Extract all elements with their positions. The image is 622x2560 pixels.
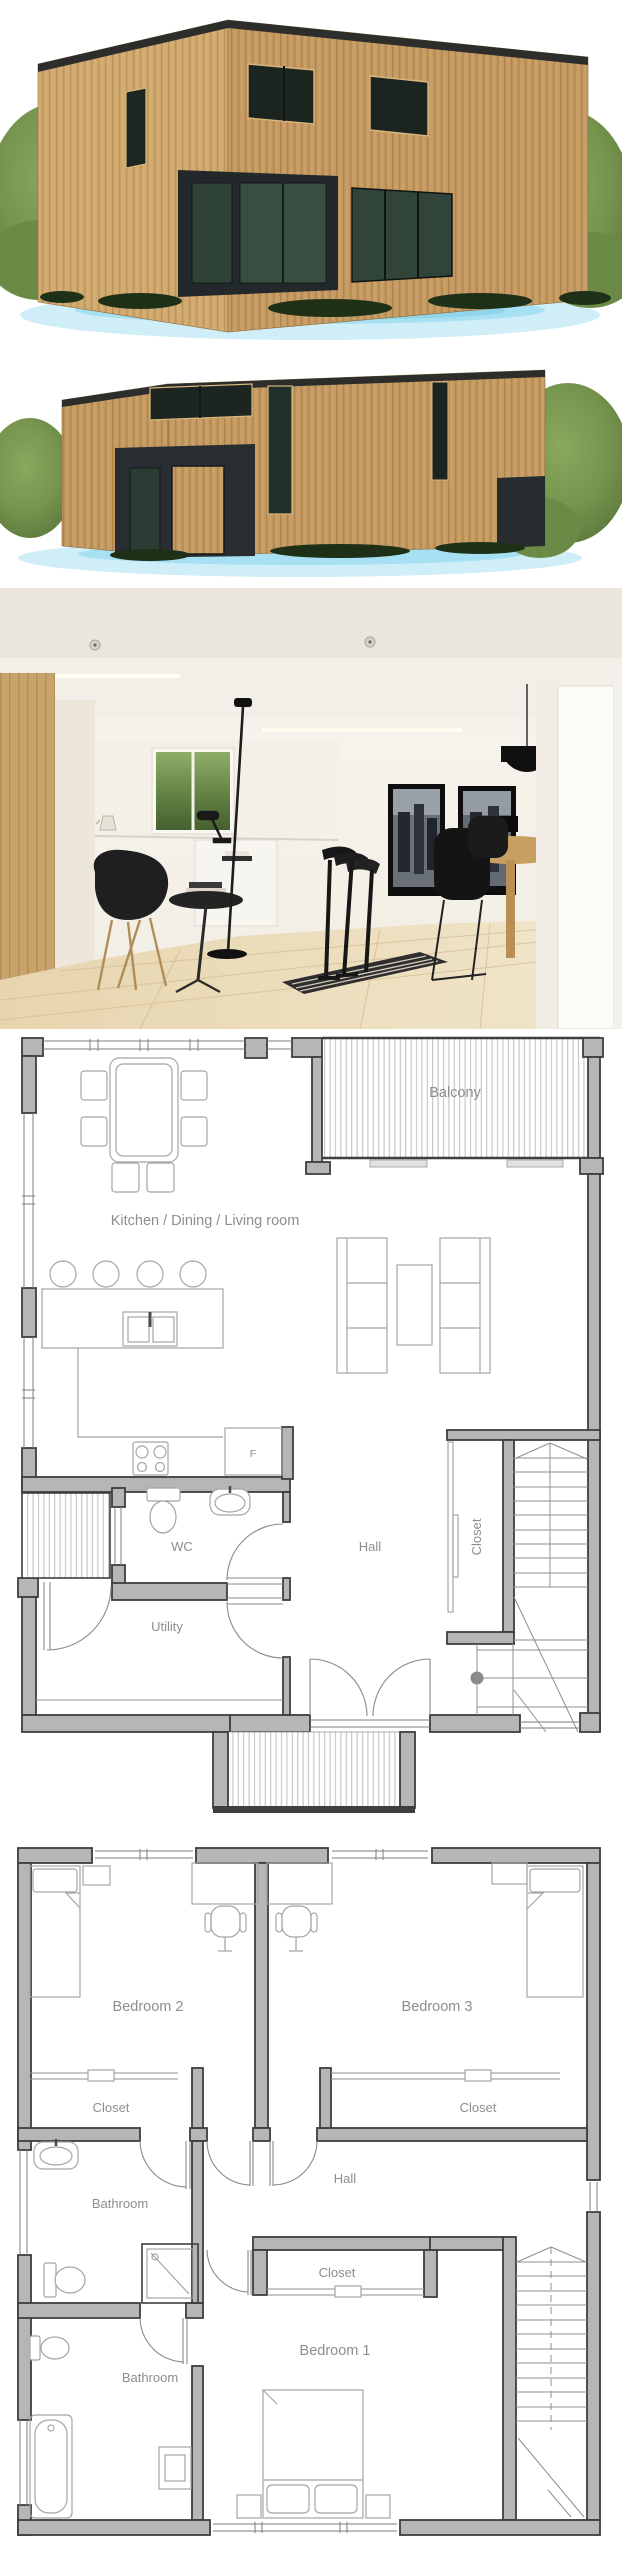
wall-pillar bbox=[536, 680, 558, 1029]
kitchen-window bbox=[152, 748, 234, 834]
interior-render-living bbox=[0, 588, 622, 1029]
cove-light-right bbox=[262, 728, 462, 732]
wc-door-swing bbox=[227, 1524, 283, 1580]
side-porch bbox=[22, 1493, 110, 1578]
main-room-label: Kitchen / Dining / Living room bbox=[111, 1213, 300, 1229]
hall-closet-upstairs: Closet bbox=[207, 2250, 424, 2297]
bedroom3-door-swing bbox=[273, 2141, 317, 2185]
portal-side-glass-icon bbox=[130, 468, 160, 554]
bathroom-lower-label: Bathroom bbox=[122, 2370, 178, 2385]
bedroom1: Bedroom 1 bbox=[237, 2343, 390, 2518]
staircase-upstairs bbox=[516, 2247, 587, 2517]
nightstand bbox=[237, 2495, 261, 2518]
kitchen: F bbox=[42, 1261, 282, 1475]
books-stack bbox=[222, 851, 252, 861]
bedroom2: Bedroom 2 Closet bbox=[30, 1863, 258, 2115]
bathroom-upper: Bathroom bbox=[34, 2139, 198, 2303]
coffee-table bbox=[397, 1265, 432, 1345]
bedroom1-door-swing bbox=[207, 2250, 248, 2292]
closet-label: Closet bbox=[469, 1518, 484, 1555]
bar-stool bbox=[137, 1261, 163, 1287]
office-chair bbox=[205, 1906, 246, 1951]
bed bbox=[527, 1866, 583, 1997]
bedroom1-label: Bedroom 1 bbox=[300, 2343, 371, 2359]
pillow bbox=[530, 1869, 580, 1892]
plan2-walls bbox=[18, 1848, 600, 2535]
rear-recess bbox=[497, 476, 545, 548]
dining-chair bbox=[81, 1071, 107, 1100]
interior-image bbox=[0, 588, 622, 1029]
dining-chair bbox=[81, 1117, 107, 1146]
bedroom2-label: Bedroom 2 bbox=[113, 1999, 184, 2015]
house-front bbox=[38, 20, 588, 332]
nightstand bbox=[83, 1866, 110, 1885]
bedroom3-label: Bedroom 3 bbox=[402, 1999, 473, 2015]
pillow bbox=[267, 2485, 309, 2513]
dining-chair bbox=[181, 1117, 207, 1146]
bathtub bbox=[30, 2415, 72, 2518]
counter-edge bbox=[78, 1348, 223, 1437]
entry-door-right-swing bbox=[373, 1659, 430, 1716]
exterior-render-entrance bbox=[0, 358, 622, 586]
house-entrance bbox=[62, 370, 545, 558]
toilet-tank bbox=[147, 1488, 180, 1501]
toilet-tank bbox=[30, 2336, 40, 2360]
hall-upstairs: Hall bbox=[207, 2141, 356, 2186]
bathroom-upper-door-swing bbox=[140, 2141, 186, 2187]
exterior-entrance-image bbox=[0, 358, 622, 586]
bathroom-upper-label: Bathroom bbox=[92, 2196, 148, 2211]
utility-exterior-door-swing bbox=[47, 1586, 111, 1650]
entry-glass-icon bbox=[192, 183, 232, 283]
window-upper-left-icon bbox=[248, 64, 314, 124]
dining-chair bbox=[147, 1163, 174, 1192]
house-plan-collage: Balcony bbox=[0, 0, 622, 2560]
utility-label: Utility bbox=[151, 1619, 183, 1634]
bedroom3: Bedroom 3 Closet bbox=[267, 1863, 583, 2115]
living-room bbox=[337, 1238, 490, 1373]
sofa bbox=[440, 1238, 490, 1373]
bathroom-cabinet bbox=[159, 2447, 191, 2489]
floor-plan-2-drawing: Bedroom 2 Closet bbox=[0, 1843, 622, 2560]
desk bbox=[192, 1863, 258, 1904]
bar-stool bbox=[50, 1261, 76, 1287]
exterior-front-image bbox=[0, 0, 622, 358]
tall-window-icon bbox=[268, 386, 292, 514]
pillow bbox=[33, 1869, 77, 1892]
closet-bracket bbox=[335, 2286, 361, 2297]
window-lower-right-icon bbox=[352, 188, 452, 282]
fridge-label: F bbox=[250, 1448, 256, 1460]
window-slit-icon bbox=[126, 88, 146, 168]
floor-plan-first: Balcony bbox=[0, 1029, 622, 1829]
dining-chair bbox=[181, 1071, 207, 1100]
front-door-icon bbox=[172, 466, 224, 554]
floor-plan-second: Bedroom 2 Closet bbox=[0, 1843, 622, 2560]
sofa bbox=[337, 1238, 387, 1373]
entry-porch bbox=[213, 1732, 415, 1813]
entry-door-left-swing bbox=[310, 1659, 367, 1716]
hall2-label: Hall bbox=[334, 2171, 357, 2186]
utility-door-swing bbox=[227, 1602, 283, 1658]
bar-stool bbox=[93, 1261, 119, 1287]
toilet-tank bbox=[44, 2263, 56, 2297]
window-upper-right-icon bbox=[370, 76, 428, 136]
kitchen-island bbox=[42, 1289, 223, 1348]
dining-chair bbox=[112, 1163, 139, 1192]
nightstand bbox=[492, 1863, 527, 1884]
double-bed bbox=[263, 2390, 363, 2518]
closet-bracket bbox=[465, 2070, 491, 2081]
staircase bbox=[477, 1443, 588, 1732]
balcony: Balcony bbox=[322, 1038, 600, 1167]
wc-label: WC bbox=[171, 1539, 193, 1554]
wc-room: WC bbox=[147, 1486, 283, 1584]
dining-table bbox=[81, 1058, 207, 1192]
office-chair bbox=[276, 1906, 317, 1951]
exterior-render-front bbox=[0, 0, 622, 358]
toilet-bowl bbox=[55, 2267, 85, 2293]
bathroom-lower-door-swing bbox=[140, 2318, 184, 2362]
narrow-window-icon bbox=[432, 382, 448, 480]
bedroom2-door-swing bbox=[207, 2141, 250, 2185]
bed bbox=[30, 1866, 80, 1997]
closet-bedroom2-label: Closet bbox=[93, 2100, 130, 2115]
bar-stool bbox=[180, 1261, 206, 1287]
shower bbox=[142, 2244, 198, 2303]
hall-label: Hall bbox=[359, 1539, 382, 1554]
desk bbox=[267, 1863, 332, 1904]
hall-closet: Closet bbox=[448, 1442, 484, 1612]
closet-hall-label: Closet bbox=[319, 2265, 356, 2280]
closet-bracket bbox=[88, 2070, 114, 2081]
toilet-bowl bbox=[150, 1501, 176, 1533]
pillow bbox=[315, 2485, 357, 2513]
floor-plan-1-drawing: Balcony bbox=[0, 1029, 622, 1829]
toilet-bowl bbox=[41, 2337, 69, 2359]
balcony-label: Balcony bbox=[429, 1085, 481, 1101]
nightstand bbox=[366, 2495, 390, 2518]
closet-bedroom3-label: Closet bbox=[460, 2100, 497, 2115]
bright-glass-door bbox=[558, 686, 614, 1029]
bathroom-lower: Bathroom bbox=[30, 2318, 191, 2518]
